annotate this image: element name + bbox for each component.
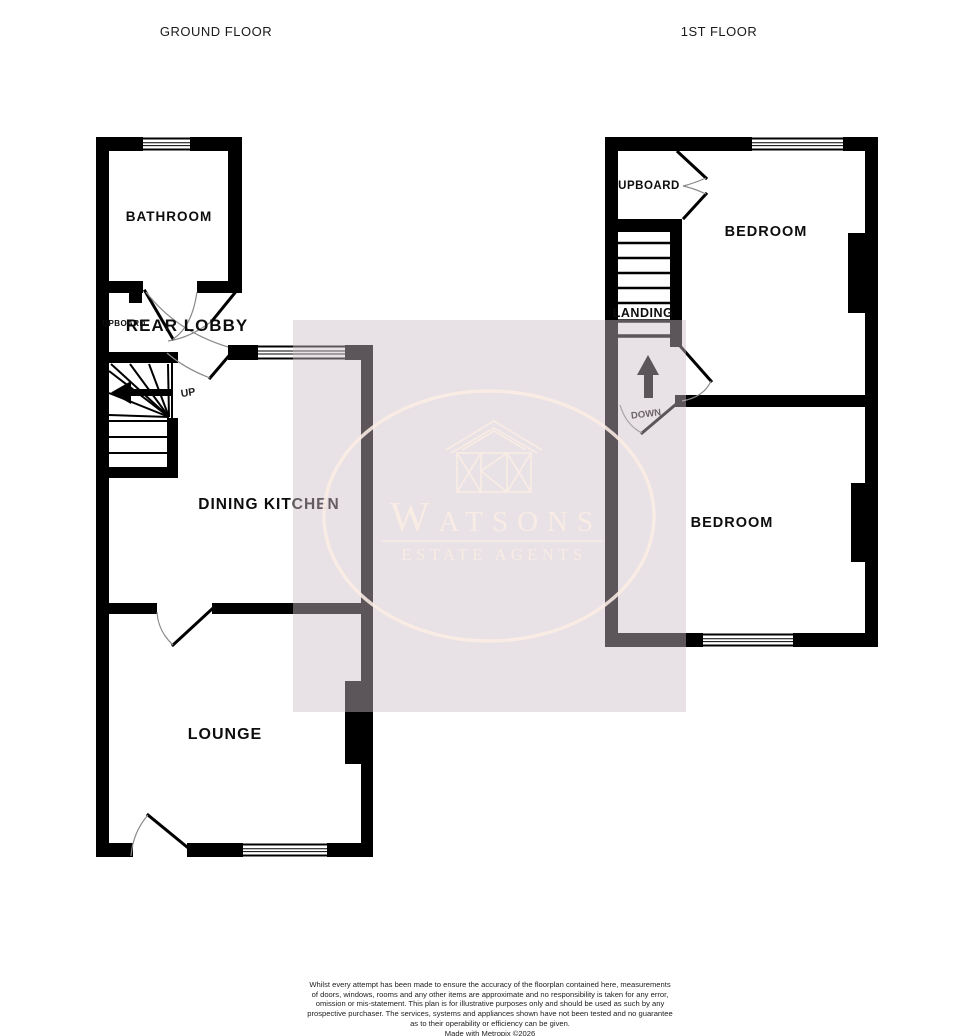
- floorplan-page: GROUND FLOOR 1ST FLOOR: [0, 0, 980, 1036]
- disclaimer-line: Whilst every attempt has been made to en…: [0, 980, 980, 990]
- ground-floor-stairs: [109, 363, 172, 453]
- disclaimer: Whilst every attempt has been made to en…: [0, 980, 980, 1036]
- disclaimer-line: of doors, windows, rooms and any other i…: [0, 990, 980, 1000]
- up-label: UP: [180, 386, 196, 400]
- watermark-name: Watsons: [390, 495, 602, 541]
- landing-label: LANDING: [613, 306, 673, 320]
- bedroom-back-label: BEDROOM: [691, 515, 774, 531]
- disclaimer-line: omission or mis-statement. This plan is …: [0, 999, 980, 1009]
- watermark-tagline: ESTATE AGENTS: [401, 545, 586, 564]
- ground-floor-door-swing-arcs: [131, 292, 228, 856]
- bedroom-front-chimney-breast: [848, 233, 866, 313]
- bathroom-window: [143, 137, 190, 151]
- bedroom-back-chimney-breast: [851, 483, 867, 562]
- watermark: Watsons ESTATE AGENTS: [293, 320, 686, 712]
- bedroom-front-window: [752, 137, 843, 151]
- disclaimer-line: prospective purchaser. The services, sys…: [0, 1009, 980, 1019]
- first-cupboard-label: UPBOARD: [618, 180, 680, 192]
- disclaimer-line: as to their operability or efficiency ca…: [0, 1019, 980, 1029]
- ground-floor-doors: [145, 289, 238, 847]
- bathroom-label: BATHROOM: [126, 209, 213, 224]
- metropix-credit: Made with Metropix ©2026: [0, 1029, 980, 1036]
- bedroom-back-window: [703, 633, 793, 647]
- bedroom-front-label: BEDROOM: [725, 224, 808, 240]
- lounge-label: LOUNGE: [188, 726, 262, 743]
- rear-lobby-label: REAR LOBBY: [126, 316, 248, 335]
- floorplan-drawing: BATHROOM UPBOARD REAR LOBBY UP DINING KI…: [0, 0, 980, 1036]
- lounge-window: [243, 843, 327, 857]
